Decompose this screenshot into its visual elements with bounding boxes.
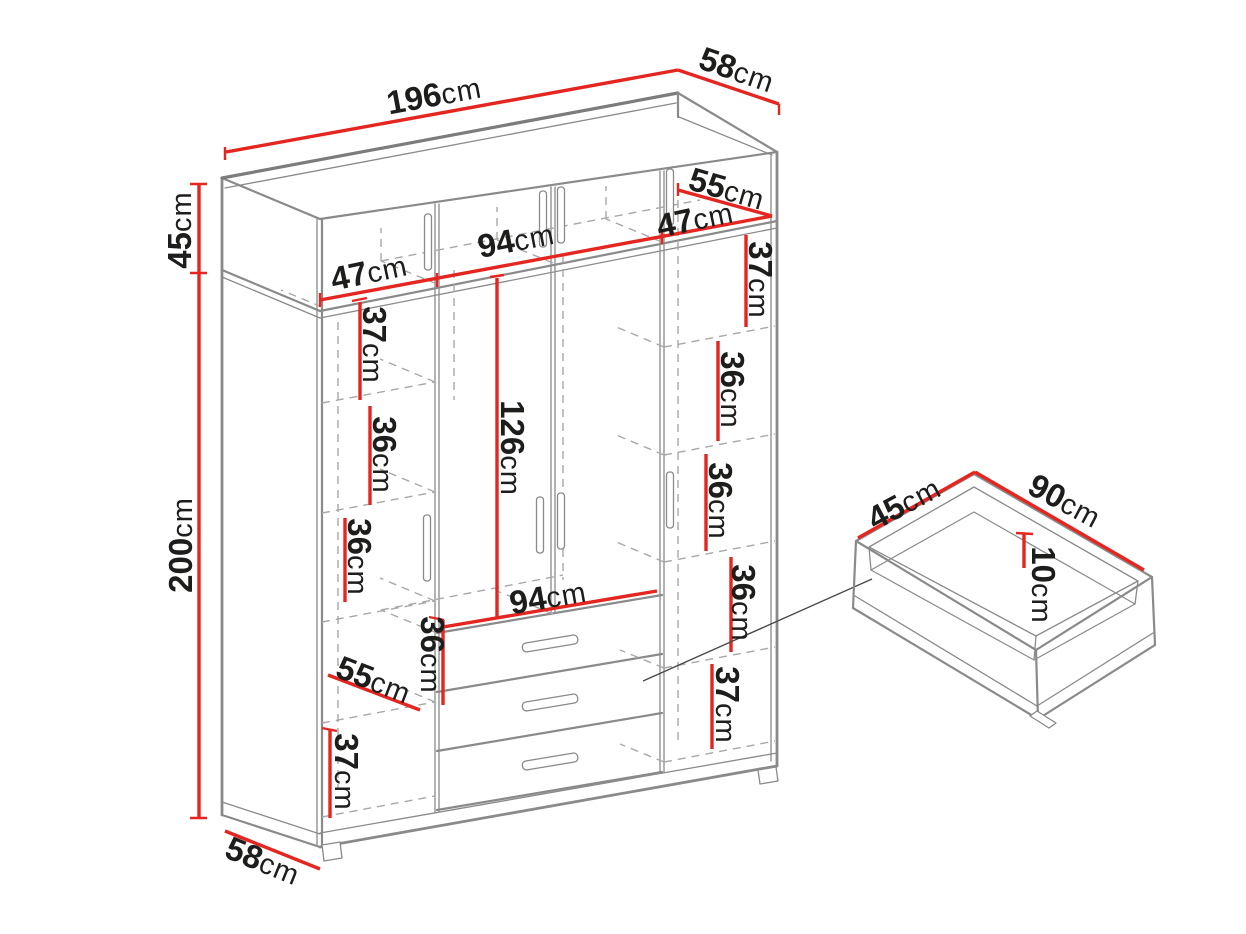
dim-value: 200	[162, 538, 199, 593]
handle-main-door-4	[667, 472, 674, 528]
door-dividers	[435, 171, 664, 812]
dim-value: 37	[356, 306, 393, 343]
dim-unit: cm	[341, 555, 373, 596]
handle-main-door-2	[537, 497, 544, 553]
handle-top-door-1	[425, 214, 432, 270]
drawer-floor	[871, 512, 1135, 660]
drawer-handles	[522, 634, 579, 770]
dim-value: 94	[507, 579, 550, 622]
dim-unit: cm	[725, 601, 757, 642]
dim-unit: cm	[167, 497, 199, 538]
dim-unit: cm	[494, 455, 526, 496]
dim-unit: cm	[414, 653, 446, 694]
dim-label-right-gap-2: 36cm	[715, 351, 749, 428]
dim-label-right-gap-5: 37cm	[710, 666, 744, 743]
dim-label-right-gap-1: 37cm	[743, 241, 777, 318]
dim-value: 45	[161, 232, 198, 269]
dim-unit: cm	[166, 191, 198, 232]
dim-label-left-gap-3: 36cm	[342, 518, 376, 595]
dim-unit: cm	[709, 703, 741, 744]
dim-value: 36	[341, 518, 378, 555]
dim-label-left-gap-2: 36cm	[367, 416, 401, 493]
dim-unit: cm	[366, 453, 398, 494]
handle-drawer-1	[522, 634, 579, 652]
dim-label-left-gap-1: 37cm	[357, 306, 391, 383]
dim-unit: cm	[328, 770, 360, 811]
dim-value: 37	[709, 666, 746, 703]
handle-top-door-3	[558, 187, 565, 243]
dim-value: 36	[725, 564, 762, 601]
diagram-drawing	[0, 0, 1246, 934]
handle-drawer-3	[522, 752, 579, 770]
dim-value: 36	[366, 416, 403, 453]
dim-value: 36	[714, 351, 751, 388]
dim-value: 36	[414, 616, 451, 653]
handle-main-door-3	[558, 493, 565, 549]
feet	[322, 767, 778, 861]
dim-value: 36	[702, 462, 739, 499]
dim-unit: cm	[714, 388, 746, 429]
dim-label-middle-door-height: 126cm	[495, 400, 529, 496]
dim-value: 37	[328, 733, 365, 770]
dim-value: 126	[494, 400, 531, 455]
dim-unit: cm	[356, 343, 388, 384]
dim-unit: cm	[702, 499, 734, 540]
dim-value: 37	[742, 241, 779, 278]
dim-label-right-gap-3: 36cm	[703, 462, 737, 539]
wardrobe-dimension-diagram: 196cm 58cm 45cm 200cm 58cm 47cm 94cm 47c…	[0, 0, 1246, 934]
dim-label-height: 200cm	[164, 497, 198, 593]
handle-drawer-2	[522, 693, 579, 711]
handle-main-door-1	[424, 515, 431, 581]
dim-label-top-section-height: 45cm	[163, 191, 197, 268]
dim-unit: cm	[1025, 583, 1057, 624]
dim-unit: cm	[742, 278, 774, 319]
dim-label-left-gap-4: 36cm	[415, 616, 449, 693]
dim-label-left-gap-5: 37cm	[329, 733, 363, 810]
drawer-foot	[1030, 711, 1056, 728]
dim-value: 10	[1025, 546, 1062, 583]
dim-label-drawer-height: 10cm	[1026, 546, 1060, 623]
dim-label-right-gap-4: 36cm	[726, 564, 760, 641]
